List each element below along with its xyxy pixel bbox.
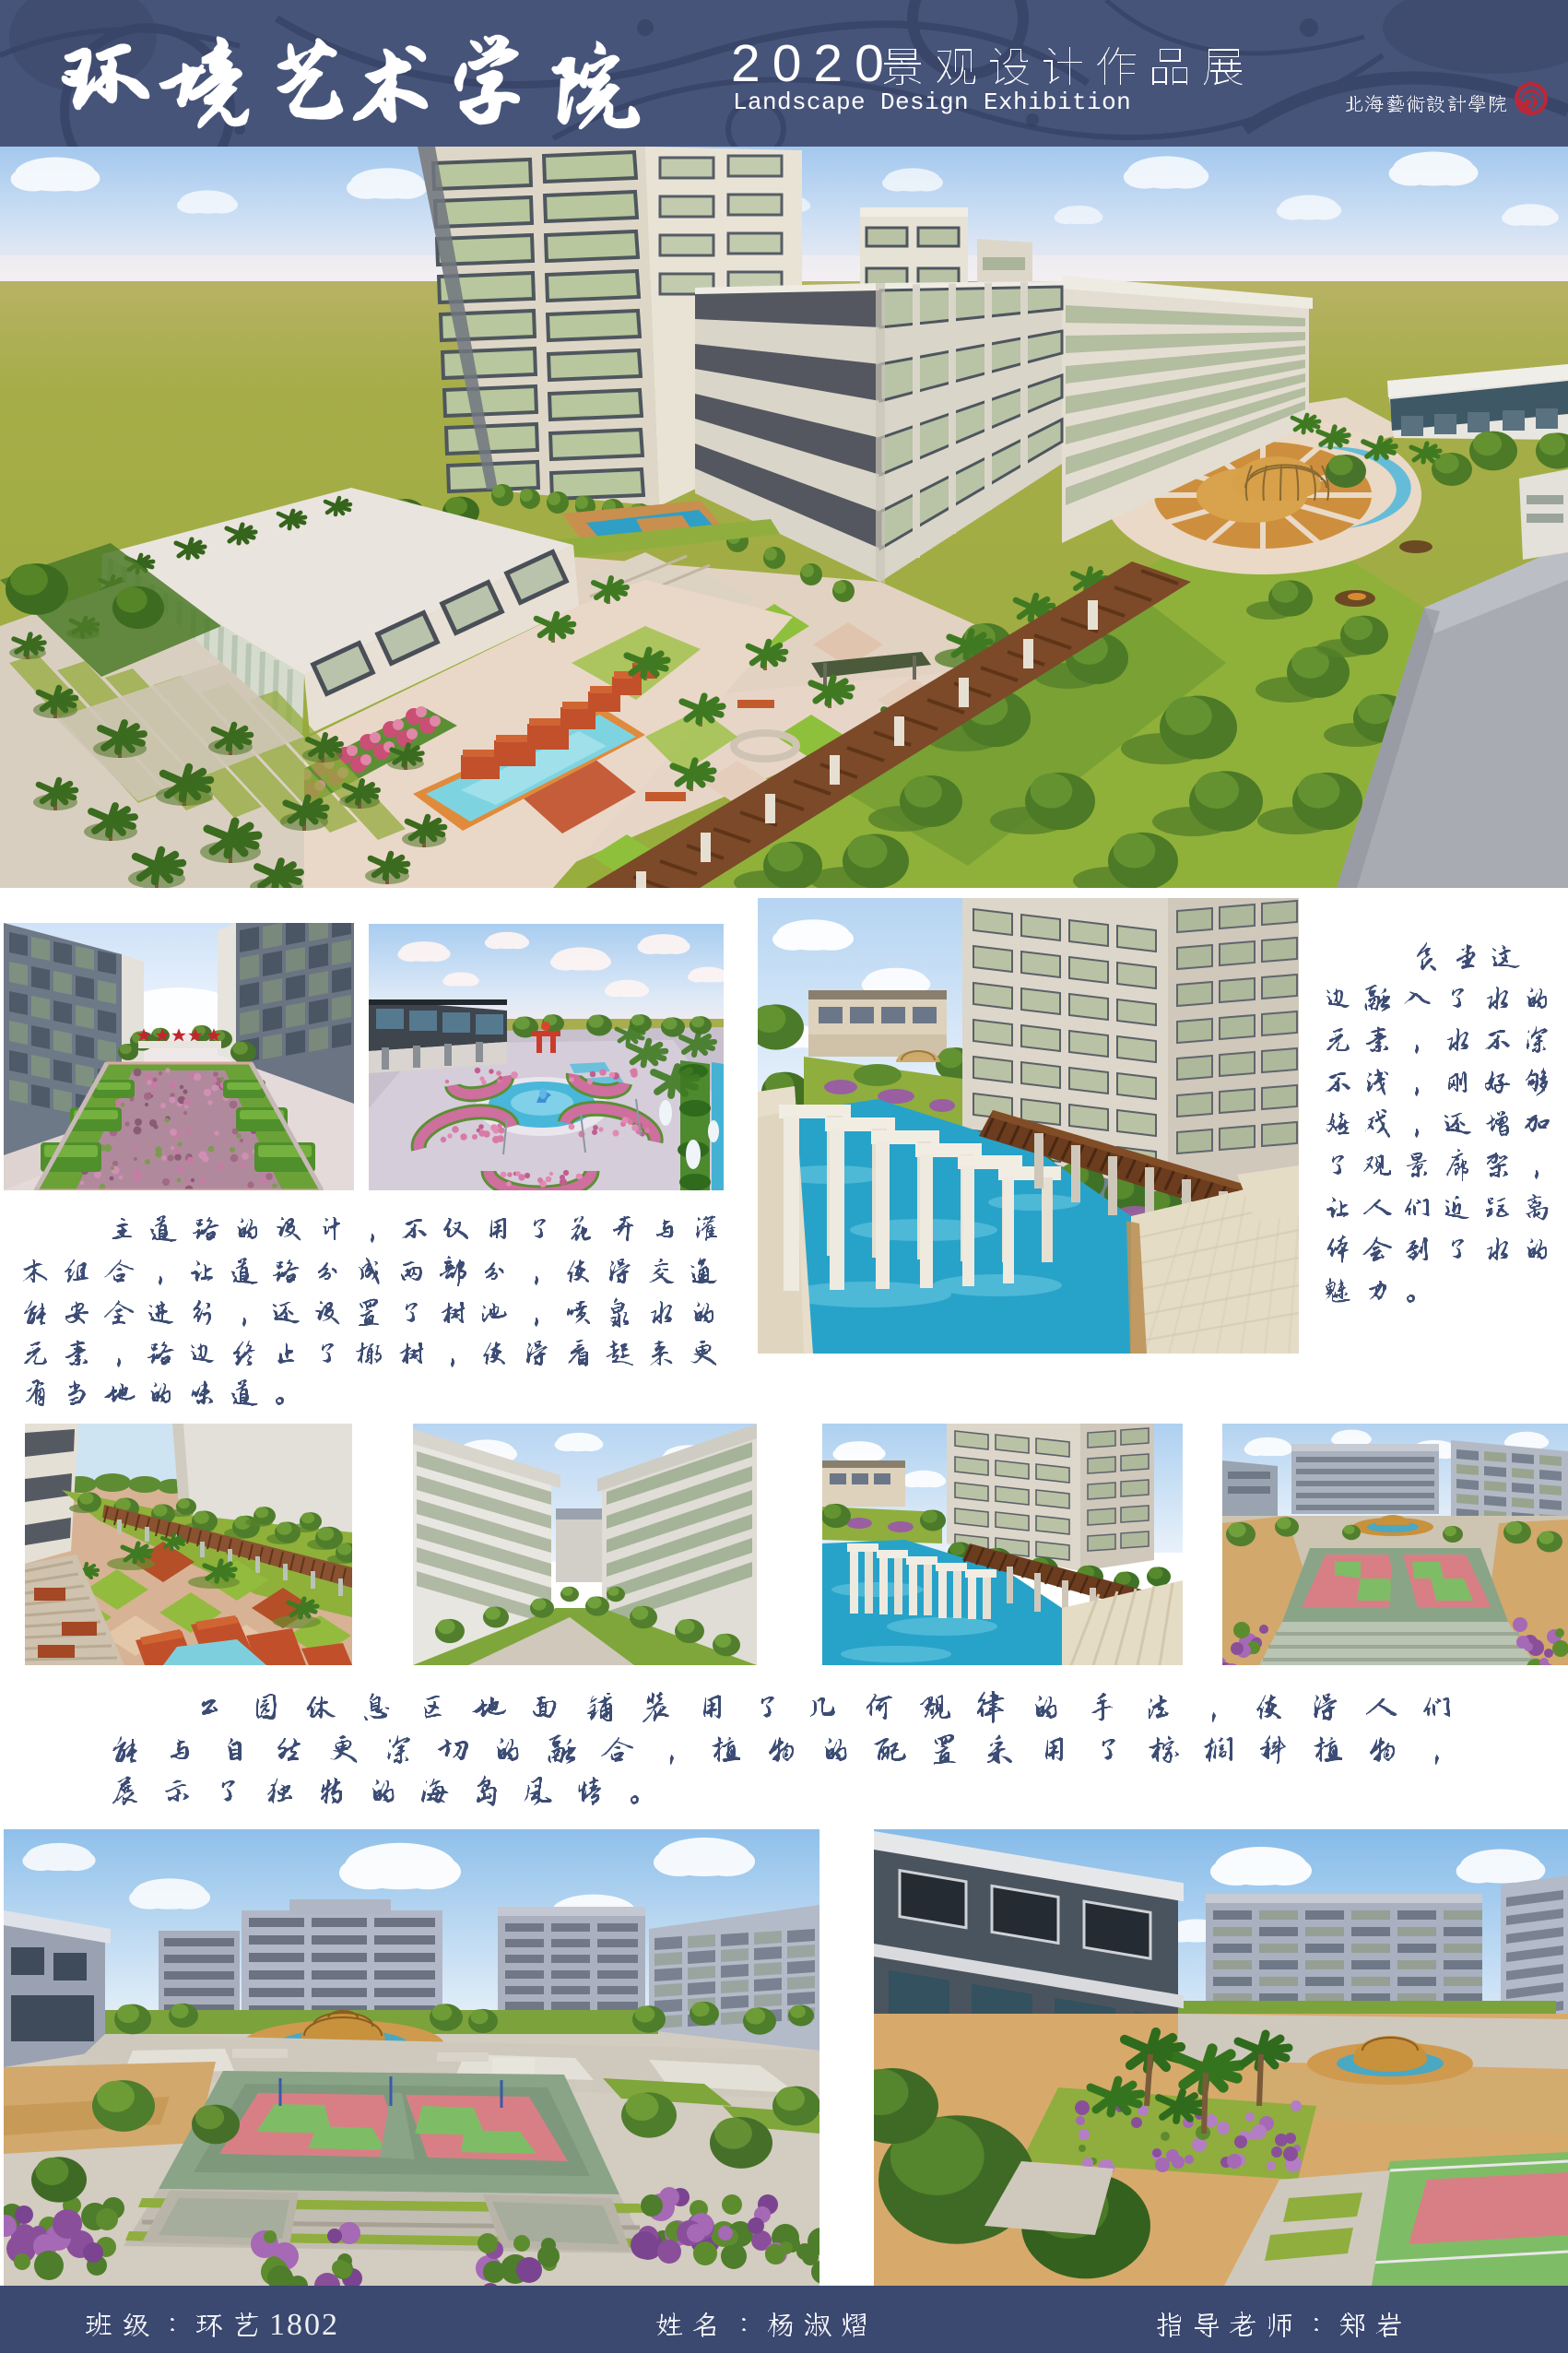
svg-text:2020: 2020 [731,34,896,93]
svg-text:Landscape Design Exhibition: Landscape Design Exhibition [733,89,1131,116]
svg-text:1802: 1802 [269,2308,339,2342]
